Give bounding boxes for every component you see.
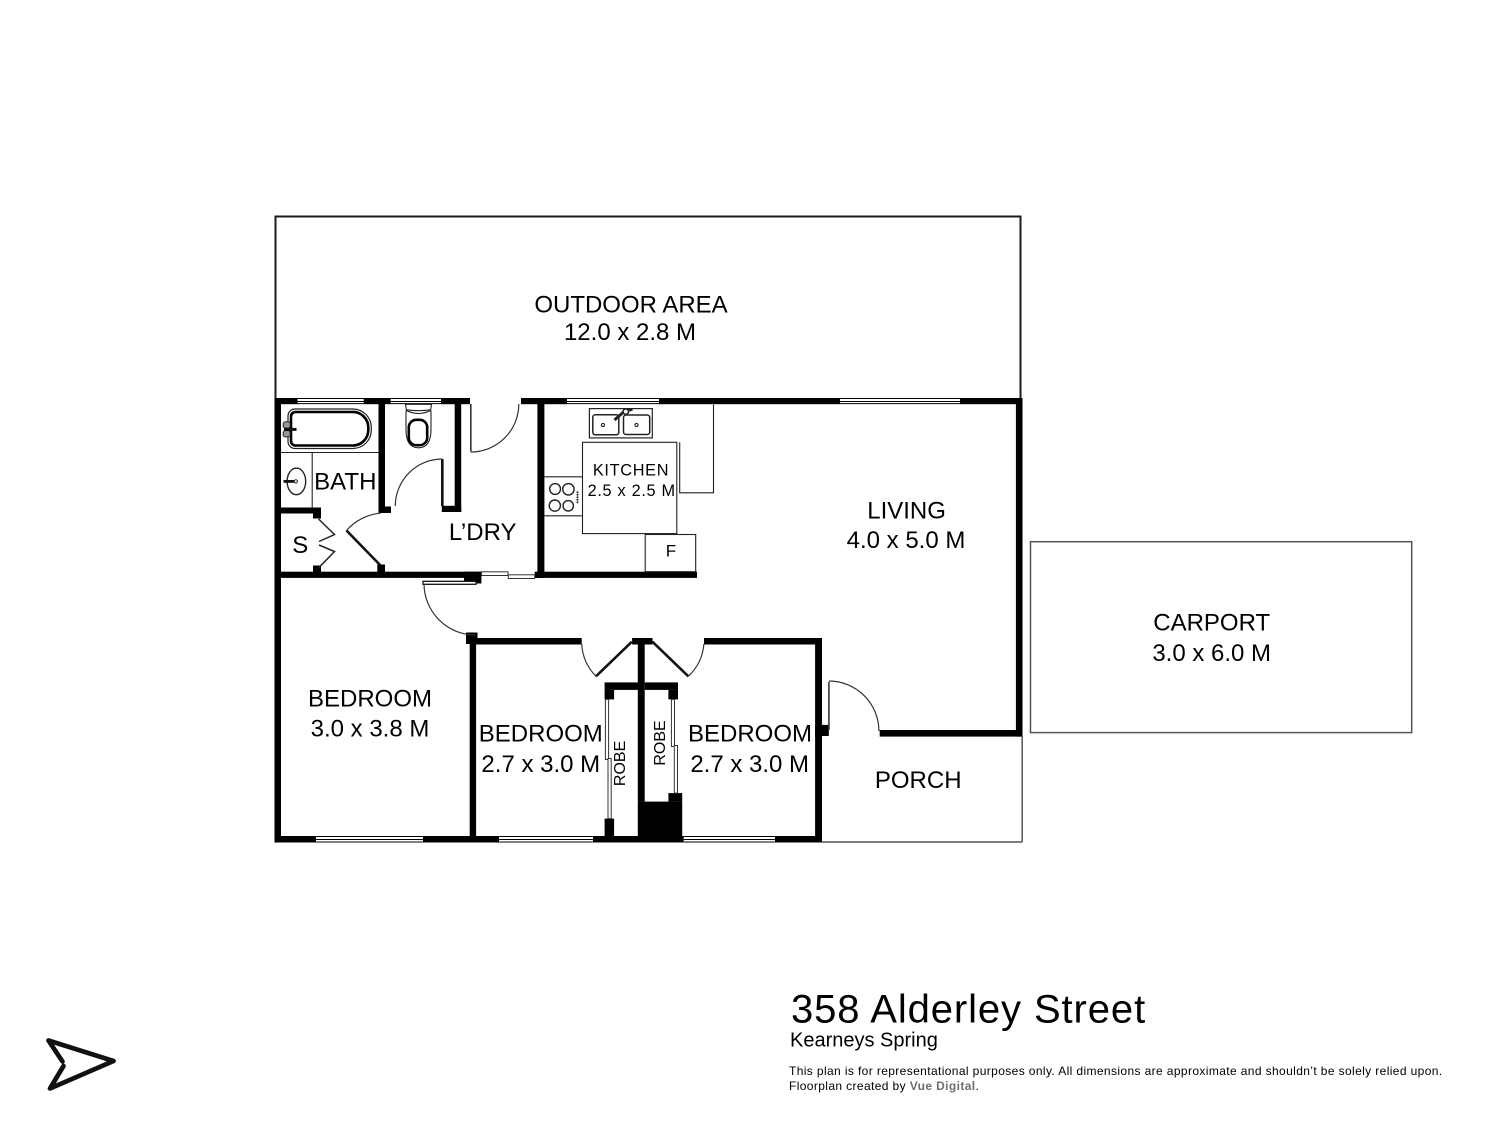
svg-text:BEDROOM: BEDROOM (308, 686, 432, 713)
svg-text:Kearneys Spring: Kearneys Spring (790, 1030, 938, 1052)
svg-text:F: F (666, 542, 676, 561)
svg-text:This plan is for representatio: This plan is for representational purpos… (789, 1064, 1443, 1078)
svg-text:3.0 x 6.0 M: 3.0 x 6.0 M (1152, 640, 1271, 667)
svg-text:CARPORT: CARPORT (1153, 610, 1270, 637)
svg-text:OUTDOOR AREA: OUTDOOR AREA (534, 292, 727, 319)
svg-text:PORCH: PORCH (875, 767, 962, 794)
svg-text:BEDROOM: BEDROOM (688, 721, 812, 748)
svg-text:12.0 x 2.8 M: 12.0 x 2.8 M (564, 319, 696, 346)
svg-text:S: S (292, 532, 308, 559)
svg-text:4.0 x 5.0 M: 4.0 x 5.0 M (847, 527, 966, 554)
svg-text:BATH: BATH (314, 469, 376, 496)
svg-text:KITCHEN: KITCHEN (593, 461, 669, 479)
svg-text:3.0 x 3.8 M: 3.0 x 3.8 M (311, 716, 430, 743)
svg-text:Floorplan created by Vue Digit: Floorplan created by Vue Digital. (789, 1079, 979, 1093)
svg-text:2.7 x 3.0 M: 2.7 x 3.0 M (481, 751, 600, 778)
svg-text:ROBE: ROBE (612, 741, 629, 786)
svg-text:2.5 x 2.5 M: 2.5 x 2.5 M (588, 482, 676, 500)
svg-text:358 Alderley Street: 358 Alderley Street (791, 988, 1146, 1032)
svg-text:BEDROOM: BEDROOM (479, 721, 603, 748)
svg-text:2.7 x 3.0 M: 2.7 x 3.0 M (690, 751, 809, 778)
svg-text:L’DRY: L’DRY (449, 519, 517, 546)
svg-text:ROBE: ROBE (652, 720, 669, 765)
svg-text:LIVING: LIVING (867, 498, 946, 525)
